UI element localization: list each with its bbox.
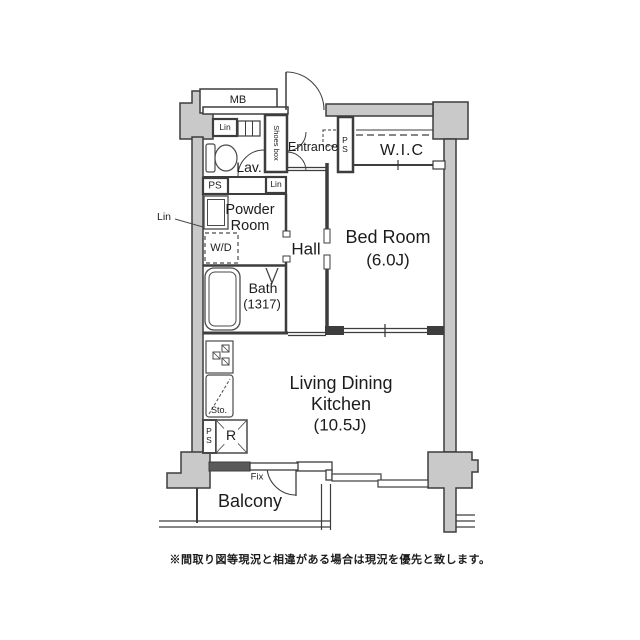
refrigerator-label: R: [224, 428, 238, 444]
hall-label: Hall: [291, 239, 320, 258]
ldk-label-2: Kitchen: [311, 394, 371, 414]
windows: [250, 463, 428, 487]
wall-top-core: [326, 104, 433, 116]
disclaimer-note: ※間取り図等現況と相違がある場合は現況を優先と致します。: [170, 554, 491, 566]
fix-window: [250, 463, 298, 470]
threshold-balcony: [209, 462, 250, 471]
meter-box-label: MB: [230, 94, 247, 106]
pillar-bottom-left: [167, 452, 210, 488]
linen-top-label: Lin: [219, 123, 230, 133]
balcony-label: Balcony: [218, 491, 282, 511]
wall-top-left: [203, 107, 288, 114]
bath-label: Bath: [249, 281, 278, 297]
washbasin-inner: [208, 200, 225, 226]
linen-outside-label: Lin: [157, 212, 171, 224]
wic-label: W.I.C: [380, 142, 424, 160]
bedroom-size-label: (6.0J): [366, 250, 409, 269]
pillar-top-right: [433, 102, 468, 139]
toilet-tank: [206, 144, 215, 172]
wall-left-core: [192, 137, 203, 453]
toilet-bowl: [215, 145, 237, 171]
bath-size-label: (1317): [243, 298, 281, 313]
floorplan-page: MB Lin Lav. PS Shoes box Lin Entrance PS…: [0, 0, 640, 640]
entrance-door-arc: [286, 72, 324, 110]
shoes-box-door-arc-2: [287, 152, 306, 171]
south-window-left: [332, 474, 381, 481]
powder-room-label-2: Room: [231, 218, 270, 234]
ldk-label-1: Living Dining: [289, 373, 392, 393]
lavatory-label: Lav.: [236, 160, 261, 176]
ps-top-label: PS: [208, 180, 221, 191]
floorplan-drawing: [0, 0, 640, 640]
fix-window-label: Fix: [251, 473, 264, 484]
powder-room-label-1: Powder: [225, 202, 274, 218]
shoes-box-label: Shoes box: [272, 125, 280, 160]
pillar-bottom-right: [428, 452, 478, 532]
entrance-label: Entrance: [288, 140, 338, 154]
linen-mid-label: Lin: [270, 180, 281, 190]
ps-bottom-label: PS: [205, 427, 214, 445]
wall-right-core: [444, 139, 456, 452]
bathtub-inner: [209, 272, 236, 326]
south-window-right: [378, 480, 428, 487]
wall-jog-corner: [326, 470, 332, 480]
storage-label: Sto.: [211, 405, 227, 415]
bedroom-label: Bed Room: [345, 227, 430, 247]
ldk-size-label: (10.5J): [314, 415, 367, 434]
ps-shaft-label: PS: [341, 136, 350, 154]
washer-dryer-label: W/D: [210, 242, 231, 254]
balcony-rails: [159, 484, 475, 530]
shelf-segmented: [238, 121, 260, 136]
